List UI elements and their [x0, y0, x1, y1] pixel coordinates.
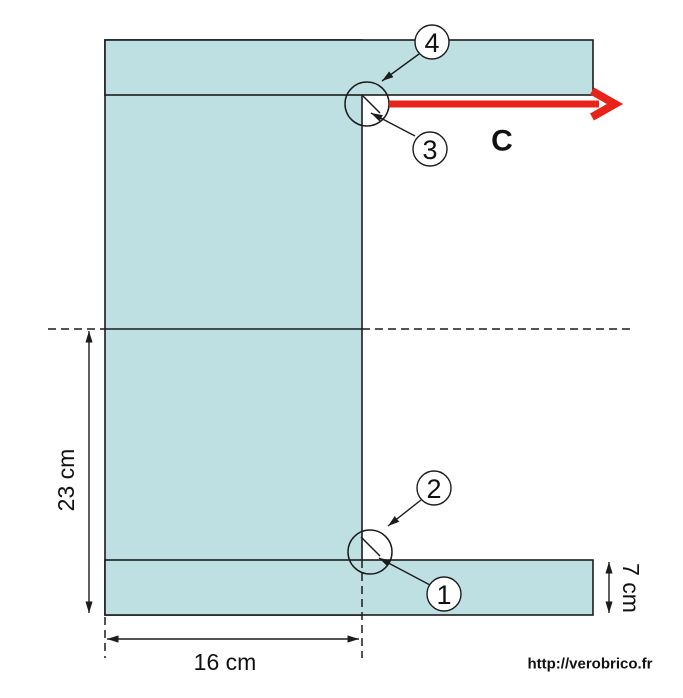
- dimension-flange-label: 7 cm: [618, 563, 644, 613]
- top-flange-panel: [105, 40, 593, 95]
- assembly-diagram: C 23 cm 16 cm 7 cm 4 3: [0, 0, 683, 698]
- dimension-height-label: 23 cm: [53, 449, 79, 512]
- diagram-page: C 23 cm 16 cm 7 cm 4 3: [0, 0, 683, 698]
- watermark-url: http://verobrico.fr: [527, 656, 652, 673]
- dimension-width-label: 16 cm: [194, 649, 257, 675]
- web-panel: [105, 40, 362, 615]
- callout-4-number: 4: [424, 28, 439, 58]
- bottom-flange-panel: [105, 560, 593, 615]
- force-label: C: [491, 125, 513, 158]
- callout-2-number: 2: [426, 474, 441, 504]
- callout-3-number: 3: [422, 135, 437, 165]
- callout-1-number: 1: [436, 580, 451, 610]
